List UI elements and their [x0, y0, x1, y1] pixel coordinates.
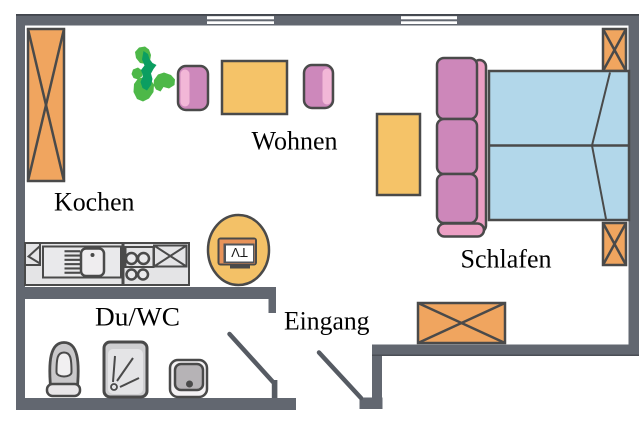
svg-text:TV: TV [231, 245, 248, 260]
svg-text:Du/WC: Du/WC [95, 303, 180, 332]
svg-text:Schlafen: Schlafen [461, 245, 552, 274]
svg-text:Eingang: Eingang [284, 307, 370, 336]
svg-text:Kochen: Kochen [54, 188, 135, 217]
svg-text:Wohnen: Wohnen [252, 127, 338, 156]
